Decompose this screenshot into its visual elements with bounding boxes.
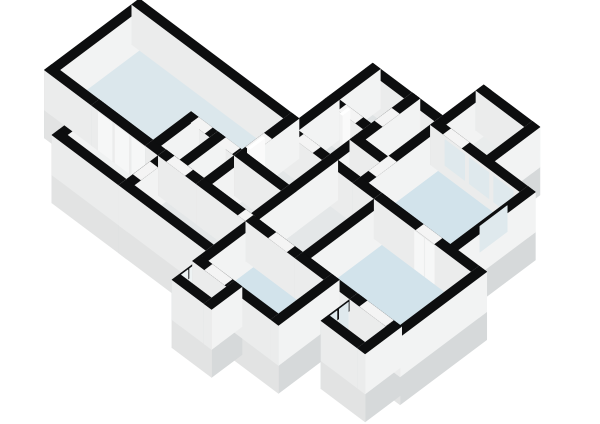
family-double-door xyxy=(415,231,424,276)
wall-face-south xyxy=(204,304,212,350)
wall-face-south xyxy=(271,320,279,366)
floorplan-svg[interactable] xyxy=(0,0,600,424)
family-double-door xyxy=(425,239,434,284)
wall-face-south xyxy=(358,348,366,394)
floorplan-canvas[interactable] xyxy=(0,0,600,424)
